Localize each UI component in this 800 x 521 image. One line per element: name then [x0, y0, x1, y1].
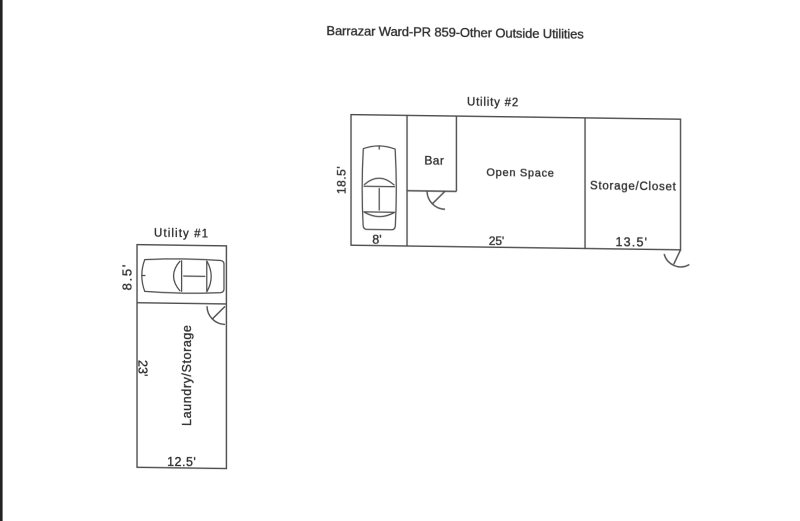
svg-text:12.5': 12.5'	[167, 455, 196, 469]
svg-text:13.5': 13.5'	[615, 235, 648, 249]
svg-text:8': 8'	[372, 233, 382, 247]
svg-text:25': 25'	[489, 234, 504, 248]
svg-text:18.5': 18.5'	[334, 166, 348, 194]
svg-text:Utility #1: Utility #1	[154, 228, 209, 241]
svg-text:Open Space: Open Space	[486, 167, 554, 180]
svg-text:Storage/Closet: Storage/Closet	[590, 180, 677, 193]
svg-text:8.5': 8.5'	[120, 263, 135, 291]
svg-text:Laundry/Storage: Laundry/Storage	[180, 324, 194, 426]
svg-text:23': 23'	[136, 360, 150, 376]
svg-text:Bar: Bar	[424, 154, 444, 168]
svg-text:Utility #2: Utility #2	[467, 97, 519, 110]
